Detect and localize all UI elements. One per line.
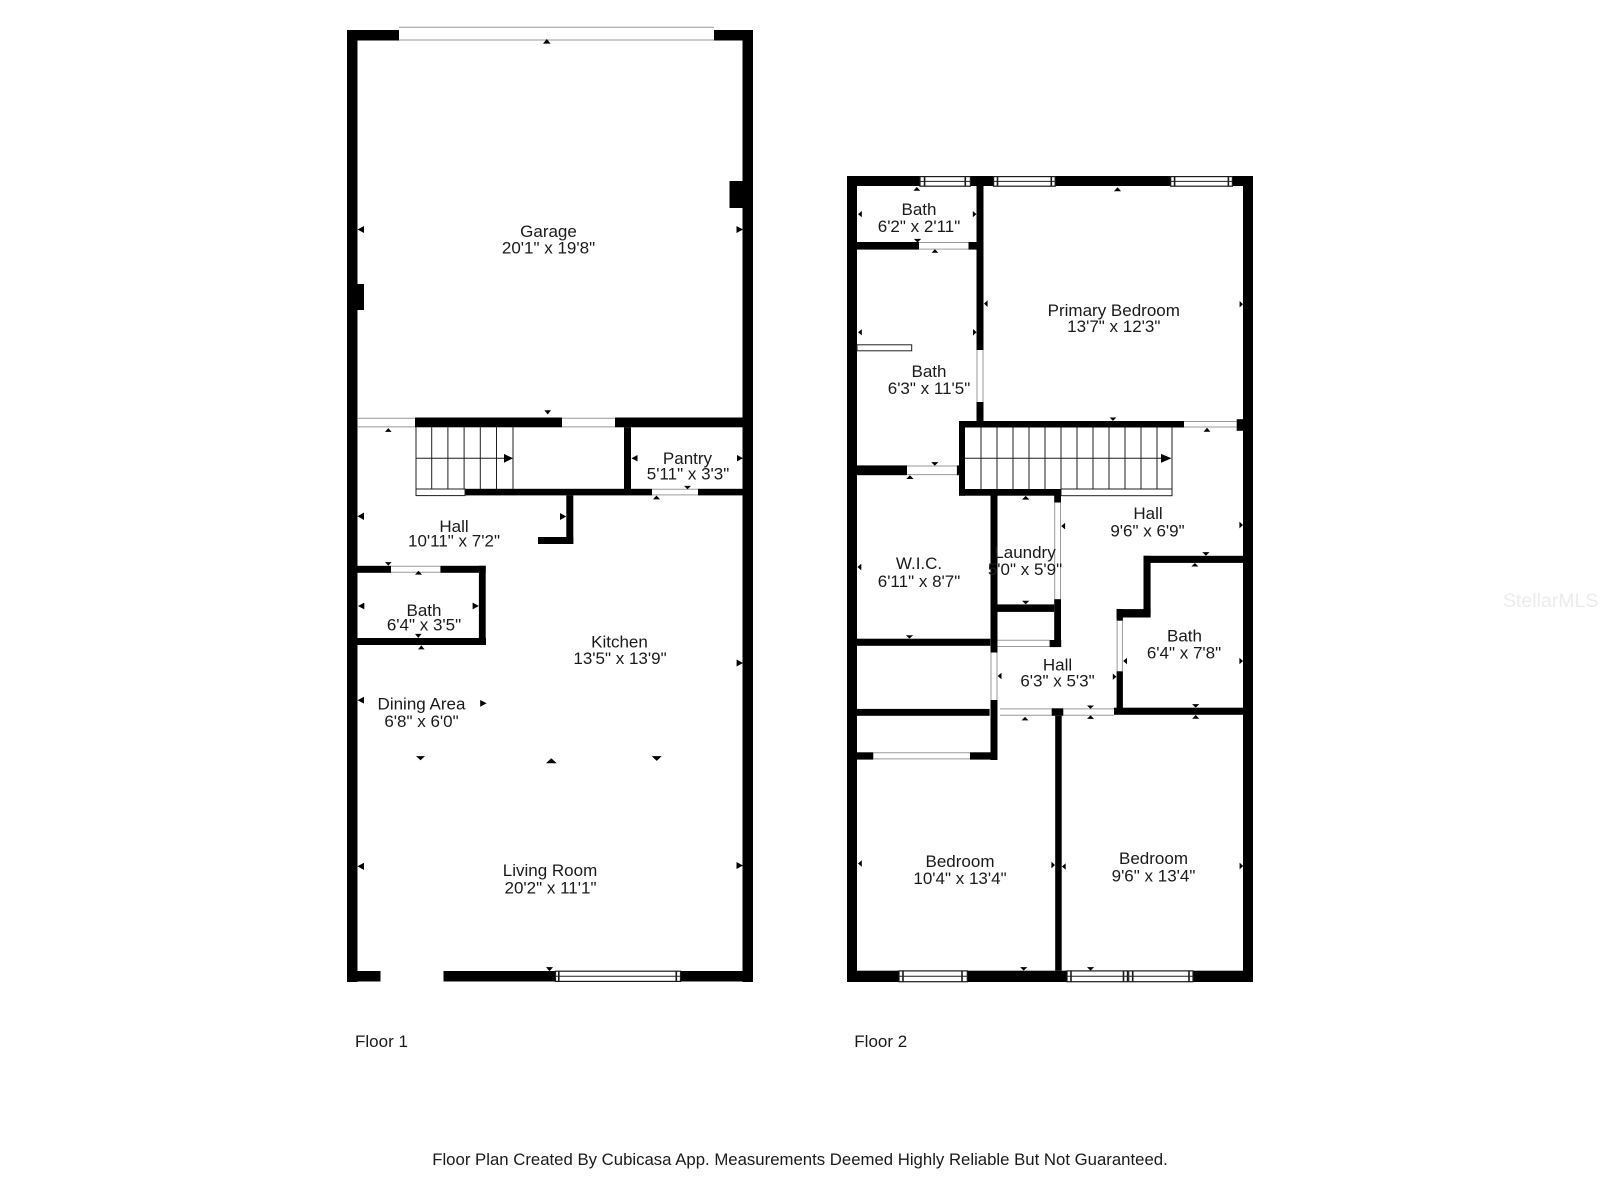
svg-text:9'6" x 6'9": 9'6" x 6'9" [1110, 522, 1184, 541]
svg-text:20'2" x 11'1": 20'2" x 11'1" [505, 879, 597, 898]
svg-text:6'11" x 8'7": 6'11" x 8'7" [878, 572, 961, 591]
svg-text:Floor 2: Floor 2 [854, 1032, 907, 1051]
svg-text:6'3" x 11'5": 6'3" x 11'5" [888, 379, 971, 398]
svg-text:5'0" x 5'9": 5'0" x 5'9" [988, 560, 1062, 579]
svg-text:5'11" x 3'3": 5'11" x 3'3" [647, 465, 730, 484]
svg-text:Floor Plan Created By Cubicasa: Floor Plan Created By Cubicasa App. Meas… [432, 1150, 1168, 1169]
svg-text:9'6" x 13'4": 9'6" x 13'4" [1112, 867, 1196, 886]
svg-text:13'5" x 13'9": 13'5" x 13'9" [573, 649, 666, 668]
svg-text:20'1" x 19'8": 20'1" x 19'8" [502, 239, 595, 258]
svg-text:10'11" x 7'2": 10'11" x 7'2" [408, 532, 500, 551]
svg-text:Bedroom: Bedroom [1119, 849, 1188, 868]
svg-text:6'2" x 2'11": 6'2" x 2'11" [878, 217, 961, 236]
svg-text:6'8" x 6'0": 6'8" x 6'0" [384, 712, 458, 731]
svg-text:Hall: Hall [1133, 504, 1162, 523]
svg-text:Dining Area: Dining Area [378, 695, 466, 714]
svg-text:6'3" x 5'3": 6'3" x 5'3" [1020, 672, 1094, 691]
svg-text:Floor 1: Floor 1 [355, 1032, 408, 1051]
svg-text:Living Room: Living Room [503, 861, 598, 880]
svg-text:10'4" x 13'4": 10'4" x 13'4" [913, 869, 1006, 888]
svg-text:6'4" x 7'8": 6'4" x 7'8" [1147, 644, 1221, 663]
svg-text:StellarMLS: StellarMLS [1503, 590, 1598, 612]
svg-text:W.I.C.: W.I.C. [896, 554, 942, 573]
svg-text:13'7" x 12'3": 13'7" x 12'3" [1067, 317, 1160, 336]
svg-text:6'4" x 3'5": 6'4" x 3'5" [387, 616, 461, 635]
